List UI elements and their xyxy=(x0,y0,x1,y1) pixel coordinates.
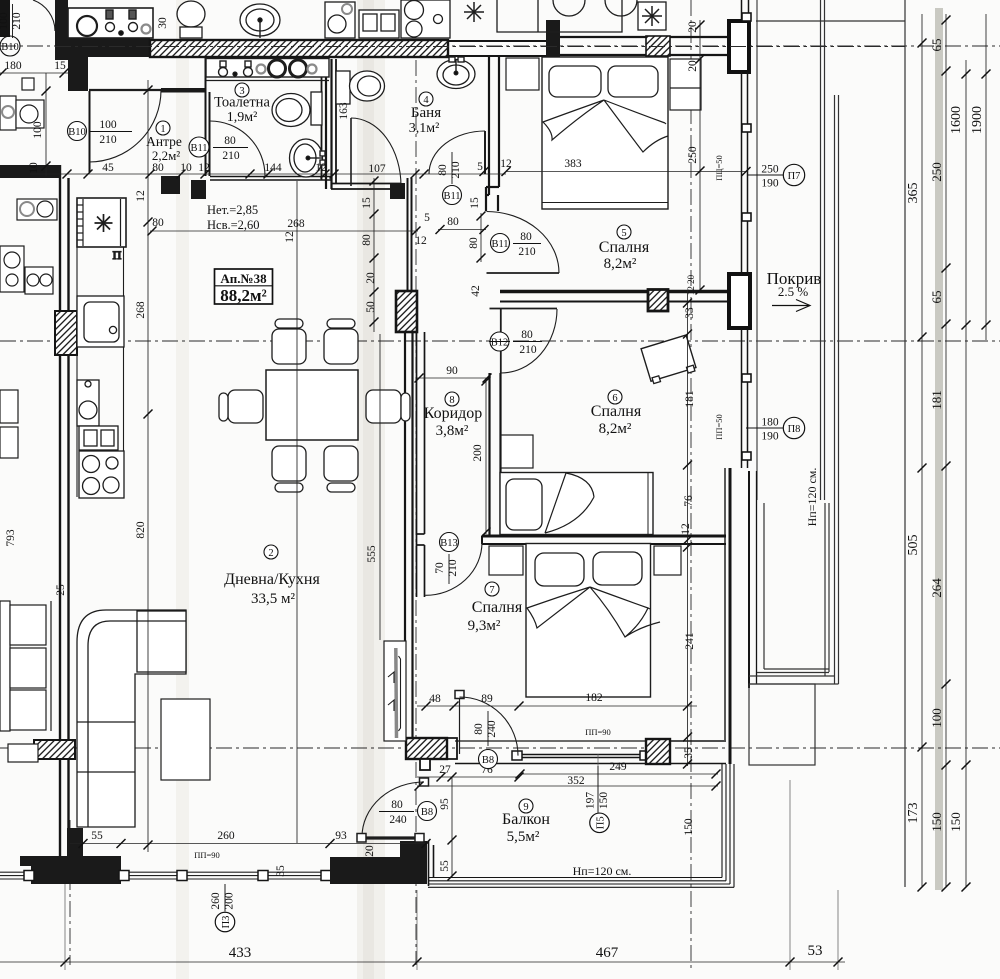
svg-text:210: 210 xyxy=(519,344,537,356)
svg-text:15: 15 xyxy=(361,197,373,209)
svg-text:Тоалетна: Тоалетна xyxy=(214,95,270,111)
svg-text:182: 182 xyxy=(585,692,603,704)
svg-text:Нсв.=2,60: Нсв.=2,60 xyxy=(207,218,260,232)
svg-text:150: 150 xyxy=(929,812,944,832)
svg-text:65: 65 xyxy=(929,291,944,304)
svg-text:181: 181 xyxy=(684,390,696,408)
svg-text:10: 10 xyxy=(28,162,40,174)
svg-text:250: 250 xyxy=(761,164,779,176)
svg-text:80: 80 xyxy=(468,237,480,249)
svg-text:50: 50 xyxy=(365,301,377,313)
svg-text:В8: В8 xyxy=(421,807,433,818)
svg-text:264: 264 xyxy=(929,578,944,598)
svg-text:15: 15 xyxy=(54,60,66,72)
svg-text:210: 210 xyxy=(450,161,462,179)
svg-text:35: 35 xyxy=(275,865,287,877)
svg-text:В11: В11 xyxy=(491,239,508,250)
svg-text:35: 35 xyxy=(683,747,695,759)
svg-text:250: 250 xyxy=(687,146,699,164)
svg-text:ПП=50: ПП=50 xyxy=(714,414,724,440)
svg-text:181: 181 xyxy=(929,390,944,410)
svg-text:210: 210 xyxy=(518,246,536,258)
svg-text:2.5 %: 2.5 % xyxy=(778,284,809,299)
svg-text:Спалня: Спалня xyxy=(599,239,650,256)
svg-text:80: 80 xyxy=(361,234,373,246)
svg-text:7: 7 xyxy=(489,585,494,596)
svg-text:260: 260 xyxy=(217,830,235,842)
svg-text:Спалня: Спалня xyxy=(472,599,523,616)
svg-text:80: 80 xyxy=(224,135,236,147)
svg-text:20: 20 xyxy=(364,845,376,857)
svg-text:33,5 м²: 33,5 м² xyxy=(251,591,295,607)
svg-text:55: 55 xyxy=(91,830,103,842)
svg-text:8,2м²: 8,2м² xyxy=(604,256,637,272)
svg-text:В10: В10 xyxy=(68,127,86,138)
svg-text:55: 55 xyxy=(439,860,451,872)
svg-text:ПП=90: ПП=90 xyxy=(194,850,220,860)
svg-text:365: 365 xyxy=(906,183,921,204)
svg-text:3,8м²: 3,8м² xyxy=(436,423,469,439)
svg-text:505: 505 xyxy=(906,535,921,556)
svg-text:48: 48 xyxy=(429,693,441,705)
svg-text:В11: В11 xyxy=(443,191,460,202)
svg-text:80: 80 xyxy=(437,164,449,176)
svg-text:П8: П8 xyxy=(788,424,801,435)
svg-text:42: 42 xyxy=(470,285,482,297)
svg-text:820: 820 xyxy=(135,521,147,539)
svg-text:В11: В11 xyxy=(190,143,207,154)
svg-text:210: 210 xyxy=(222,150,240,162)
svg-text:В13: В13 xyxy=(440,538,458,549)
svg-text:1900: 1900 xyxy=(970,106,985,134)
svg-text:180: 180 xyxy=(761,417,779,429)
svg-text:20: 20 xyxy=(365,272,377,284)
svg-text:80: 80 xyxy=(152,217,164,229)
svg-text:100: 100 xyxy=(0,12,10,30)
svg-text:ПП=90: ПП=90 xyxy=(585,727,611,737)
svg-text:П3: П3 xyxy=(221,916,232,929)
svg-text:100: 100 xyxy=(929,708,944,728)
svg-text:150: 150 xyxy=(598,792,610,810)
svg-text:555: 555 xyxy=(366,545,378,563)
svg-text:25: 25 xyxy=(55,584,67,596)
svg-text:250: 250 xyxy=(929,162,944,182)
svg-text:Нп=120 см.: Нп=120 см. xyxy=(573,864,632,878)
svg-text:163: 163 xyxy=(338,102,350,120)
svg-text:27: 27 xyxy=(439,764,451,776)
svg-text:В12: В12 xyxy=(491,338,509,349)
svg-text:95: 95 xyxy=(439,798,451,810)
svg-text:268: 268 xyxy=(135,301,147,319)
svg-text:1600: 1600 xyxy=(949,106,964,134)
svg-text:200: 200 xyxy=(224,892,236,910)
svg-text:100: 100 xyxy=(32,121,44,139)
svg-text:173: 173 xyxy=(906,803,921,824)
svg-text:53: 53 xyxy=(808,943,823,959)
svg-text:80: 80 xyxy=(152,162,164,174)
svg-text:190: 190 xyxy=(761,431,779,443)
svg-text:В10: В10 xyxy=(1,42,19,53)
svg-text:5: 5 xyxy=(477,161,483,173)
svg-text:383: 383 xyxy=(564,158,582,170)
svg-text:12: 12 xyxy=(680,523,692,535)
svg-text:5: 5 xyxy=(621,228,626,239)
svg-text:150: 150 xyxy=(948,812,963,832)
svg-text:80: 80 xyxy=(473,723,485,735)
svg-text:12: 12 xyxy=(315,162,327,174)
svg-text:Нет.=2,85: Нет.=2,85 xyxy=(207,203,258,217)
svg-text:Дневна/Кухня: Дневна/Кухня xyxy=(224,571,320,588)
svg-text:197: 197 xyxy=(585,792,597,810)
svg-text:210: 210 xyxy=(99,134,117,146)
svg-text:П5: П5 xyxy=(595,816,606,829)
svg-text:190: 190 xyxy=(761,178,779,190)
svg-text:Антре: Антре xyxy=(146,134,182,149)
svg-text:200: 200 xyxy=(472,444,484,462)
svg-text:П: П xyxy=(113,248,122,262)
svg-text:ПЦ=50: ПЦ=50 xyxy=(714,155,724,181)
svg-text:12 20: 12 20 xyxy=(686,274,696,295)
svg-text:80: 80 xyxy=(521,329,533,341)
svg-text:433: 433 xyxy=(229,945,252,961)
svg-text:65: 65 xyxy=(929,39,944,52)
svg-text:5,5м²: 5,5м² xyxy=(507,829,540,845)
svg-text:10: 10 xyxy=(180,162,192,174)
svg-text:793: 793 xyxy=(5,529,17,547)
svg-text:241: 241 xyxy=(684,632,696,650)
svg-text:100: 100 xyxy=(99,119,117,131)
svg-text:89: 89 xyxy=(481,693,493,705)
svg-text:Ап.№38: Ап.№38 xyxy=(220,271,267,286)
svg-text:107: 107 xyxy=(368,163,386,175)
svg-text:249: 249 xyxy=(609,761,627,773)
svg-text:9,3м²: 9,3м² xyxy=(468,618,501,634)
svg-text:5: 5 xyxy=(424,212,430,224)
svg-text:76: 76 xyxy=(683,495,695,507)
svg-text:Спалня: Спалня xyxy=(591,403,642,420)
svg-text:240: 240 xyxy=(389,814,407,826)
svg-text:15: 15 xyxy=(469,197,481,209)
svg-text:Коридор: Коридор xyxy=(424,405,483,422)
svg-text:45: 45 xyxy=(102,162,114,174)
svg-text:144: 144 xyxy=(264,162,282,174)
svg-text:240: 240 xyxy=(486,720,498,738)
svg-text:30: 30 xyxy=(157,17,169,29)
svg-text:12: 12 xyxy=(198,162,210,174)
svg-text:8,2м²: 8,2м² xyxy=(599,421,632,437)
svg-text:3,1м²: 3,1м² xyxy=(409,121,440,136)
svg-text:467: 467 xyxy=(596,945,619,961)
svg-text:80: 80 xyxy=(520,231,532,243)
svg-text:В8: В8 xyxy=(482,755,494,766)
svg-text:352: 352 xyxy=(567,775,585,787)
svg-text:33: 33 xyxy=(684,307,696,319)
svg-text:Балкон: Балкон xyxy=(502,811,550,828)
svg-text:12: 12 xyxy=(284,231,296,243)
svg-text:2: 2 xyxy=(268,548,273,559)
svg-text:20: 20 xyxy=(687,60,699,72)
svg-text:80: 80 xyxy=(447,216,459,228)
svg-text:12: 12 xyxy=(500,158,512,170)
svg-text:268: 268 xyxy=(287,218,305,230)
svg-text:80: 80 xyxy=(391,799,403,811)
svg-text:П7: П7 xyxy=(788,171,801,182)
svg-text:12: 12 xyxy=(135,190,147,202)
svg-text:Нп=120 см.: Нп=120 см. xyxy=(805,468,819,527)
svg-text:90: 90 xyxy=(446,365,458,377)
svg-text:88,2м²: 88,2м² xyxy=(220,286,266,305)
svg-text:1,9м²: 1,9м² xyxy=(227,110,258,125)
svg-text:260: 260 xyxy=(210,892,222,910)
svg-text:12: 12 xyxy=(415,235,427,247)
svg-text:20: 20 xyxy=(687,21,699,33)
svg-text:150: 150 xyxy=(683,818,695,836)
svg-text:93: 93 xyxy=(335,830,347,842)
svg-text:180: 180 xyxy=(4,60,22,72)
svg-text:70: 70 xyxy=(434,562,446,574)
svg-text:210: 210 xyxy=(447,559,459,577)
svg-text:Баня: Баня xyxy=(411,105,441,121)
svg-text:2,2м²: 2,2м² xyxy=(152,148,180,163)
